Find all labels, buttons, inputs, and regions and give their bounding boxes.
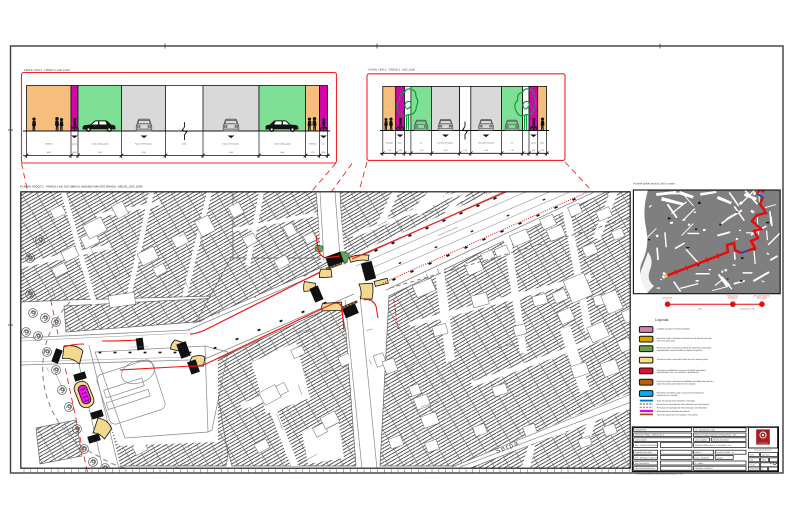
svg-text:01-M 01-05 S-TM: 01-M 01-05 S-TM xyxy=(740,307,755,310)
svg-text:VIA DE CIRCULAÇÃO: VIA DE CIRCULAÇÃO xyxy=(91,143,109,146)
svg-text:5.20: 5.20 xyxy=(47,151,51,154)
svg-text:ESP. - ESPACIAL TRABALHO: ESP. - ESPACIAL TRABALHO xyxy=(635,456,658,459)
svg-text:FAIXA DE ESTACION.: FAIXA DE ESTACION. xyxy=(223,143,240,146)
svg-text:1.70: 1.70 xyxy=(387,149,391,152)
svg-text:DESENHO GERAL M05.01 E AVN GER: DESENHO GERAL M05.01 E AVN GERAL - 01A xyxy=(695,444,732,447)
svg-text:5.45: 5.45 xyxy=(280,151,284,154)
svg-text:Brito Capelo: Brito Capelo xyxy=(757,297,767,300)
svg-text:LOCALIZAÇÃO: LOCALIZAÇÃO xyxy=(695,438,708,441)
svg-text:5.60: 5.60 xyxy=(484,149,488,152)
svg-text:esquartelada, praça de betão o: esquartelada, praça de betão ou lajetas … xyxy=(657,349,703,352)
svg-text:FAIXA DE ESTACION.: FAIXA DE ESTACION. xyxy=(135,143,152,146)
svg-text:PLANO DO PROJ. - 01: PLANO DO PROJ. - 01 xyxy=(716,451,734,454)
svg-text:5.05: 5.05 xyxy=(142,151,146,154)
svg-text:0.90: 0.90 xyxy=(322,151,326,154)
svg-text:Percurso de reposição de infra: Percurso de reposição de infra estrutura… xyxy=(657,403,710,406)
svg-text:REQUALIFICAÇÃO URBANA E ESPAÇO: REQUALIFICAÇÃO URBANA E ESPAÇO PÚBL. - 0… xyxy=(695,434,737,437)
svg-text:0.95: 0.95 xyxy=(73,151,77,154)
svg-text:PERFIL TIPO 2 - TROÇO 1 , ESC: PERFIL TIPO 2 - TROÇO 1 , ESC 1/100 xyxy=(369,69,416,72)
svg-text:PERFIL TIPO 1 - TROÇO 1, ESC 1: PERFIL TIPO 1 - TROÇO 1, ESC 1/100 xyxy=(24,69,70,72)
svg-text:LOCALIZAÇÃO: LOCALIZAÇÃO xyxy=(635,438,648,441)
svg-text:cubo de granito para travessia: cubo de granito para travessia em calcad… xyxy=(657,383,696,386)
svg-text:Percurso de reposição de infra: Percurso de reposição de infra estrutura… xyxy=(657,406,708,409)
svg-text:DESENHO N: DESENHO N xyxy=(750,468,761,471)
svg-text:5.05: 5.05 xyxy=(229,151,233,154)
svg-text:CM - CÂMARA MUN. MOS: CM - CÂMARA MUN. MOS xyxy=(695,428,716,431)
svg-text:REQUERENTE: REQUERENTE xyxy=(635,428,648,431)
svg-text:M-01: M-01 xyxy=(698,307,702,310)
svg-text:Calçada mosaico em forma irreg: Calçada mosaico em forma irregular xyxy=(657,327,690,330)
svg-text:PASSEIO: PASSEIO xyxy=(45,143,53,146)
svg-text:01: 01 xyxy=(762,468,764,471)
svg-text:5.50: 5.50 xyxy=(444,149,448,152)
svg-text:PLANTA TROÇO 1 - PRAÇA 5 DE OU: PLANTA TROÇO 1 - PRAÇA 5 DE OUTUBRO E AV… xyxy=(20,185,143,189)
svg-text:ARQ. PAISAGISTA: ARQ. PAISAGISTA xyxy=(635,462,650,465)
svg-text:Matosinhos: Matosinhos xyxy=(663,296,673,299)
svg-text:1.10: 1.10 xyxy=(532,149,536,152)
svg-text:1.45: 1.45 xyxy=(463,149,467,152)
svg-text:ELABORAçÃO GERAL: ELABORAçÃO GERAL xyxy=(635,451,653,454)
svg-text:Faixa de pavimento em fachada: Faixa de pavimento em fachada e em parci… xyxy=(657,413,698,416)
svg-text:ESC.: ESC. xyxy=(750,459,754,462)
svg-text:AVENIDA E GARÇAS: AVENIDA E GARÇAS xyxy=(712,438,729,441)
svg-text:5.10: 5.10 xyxy=(98,151,102,154)
svg-text:Nº - OBRA: Nº - OBRA xyxy=(695,462,704,465)
svg-text:CICLO: CICLO xyxy=(72,143,78,146)
svg-text:PASSEIO: PASSEIO xyxy=(309,143,317,146)
svg-text:CÂMARA M. PRAÇA - OBRA E AVN.: CÂMARA M. PRAÇA - OBRA E AVN. B xyxy=(635,434,665,437)
svg-text:2.70: 2.70 xyxy=(419,149,423,152)
svg-text:1.45: 1.45 xyxy=(540,149,544,152)
svg-text:0.90: 0.90 xyxy=(398,149,402,152)
svg-text:Percurso sobre o pavimento vár: Percurso sobre o pavimento vário em cor … xyxy=(657,358,709,361)
svg-text:PROÇ. N: PROÇ. N xyxy=(695,451,703,454)
svg-text:VIA DE CIRCULAÇÃO: VIA DE CIRCULAÇÃO xyxy=(274,143,292,146)
svg-text:ENG. INFRAESTRUTURA: ENG. INFRAESTRUTURA xyxy=(635,467,656,470)
svg-text:1/500: 1/500 xyxy=(762,459,766,462)
svg-text:esquartelado e em cor natural: esquartelado e em cor natural em betumin… xyxy=(657,371,700,374)
svg-text:MUNICIPIO MATOSINHOS: MUNICIPIO MATOSINHOS xyxy=(755,450,772,452)
svg-text:OBS.: VERSÃO DE ESTUDO: OBS.: VERSÃO DE ESTUDO xyxy=(635,444,658,447)
svg-text:MAR 2021: MAR 2021 xyxy=(762,454,770,457)
svg-text:C:\PROJETOS\M05\PLANTA GERAL D: C:\PROJETOS\M05\PLANTA GERAL DESENHO 01 … xyxy=(636,473,683,476)
svg-text:Guia de escoamento mediante a: Guia de escoamento mediante a remoção xyxy=(657,400,696,403)
svg-text:DESENHO - PROJETO: DESENHO - PROJETO xyxy=(695,467,713,470)
svg-text:Matosinhos: Matosinhos xyxy=(728,297,738,300)
svg-text:Legenda: Legenda xyxy=(655,318,668,322)
svg-text:DATA - DESENHO: DATA - DESENHO xyxy=(695,456,710,459)
svg-text:02/02/20: 02/02/20 xyxy=(716,456,723,459)
svg-text:PLANTA GERAL MOS-01_ESC 1/1000: PLANTA GERAL MOS-01_ESC 1/10000 xyxy=(634,182,676,185)
svg-text:pavimento em morada: pavimento em morada xyxy=(657,394,678,397)
svg-text:2.70: 2.70 xyxy=(510,149,514,152)
svg-text:1.70: 1.70 xyxy=(311,151,315,154)
svg-text:Aplicação de sinalização de mé: Aplicação de sinalização de método xyxy=(657,410,691,413)
svg-text:AVEN.: AVEN. xyxy=(182,143,187,146)
svg-text:tiver vista clara ótica: tiver vista clara ótica xyxy=(657,339,676,342)
svg-text:FOLHA: FOLHA xyxy=(750,464,757,467)
